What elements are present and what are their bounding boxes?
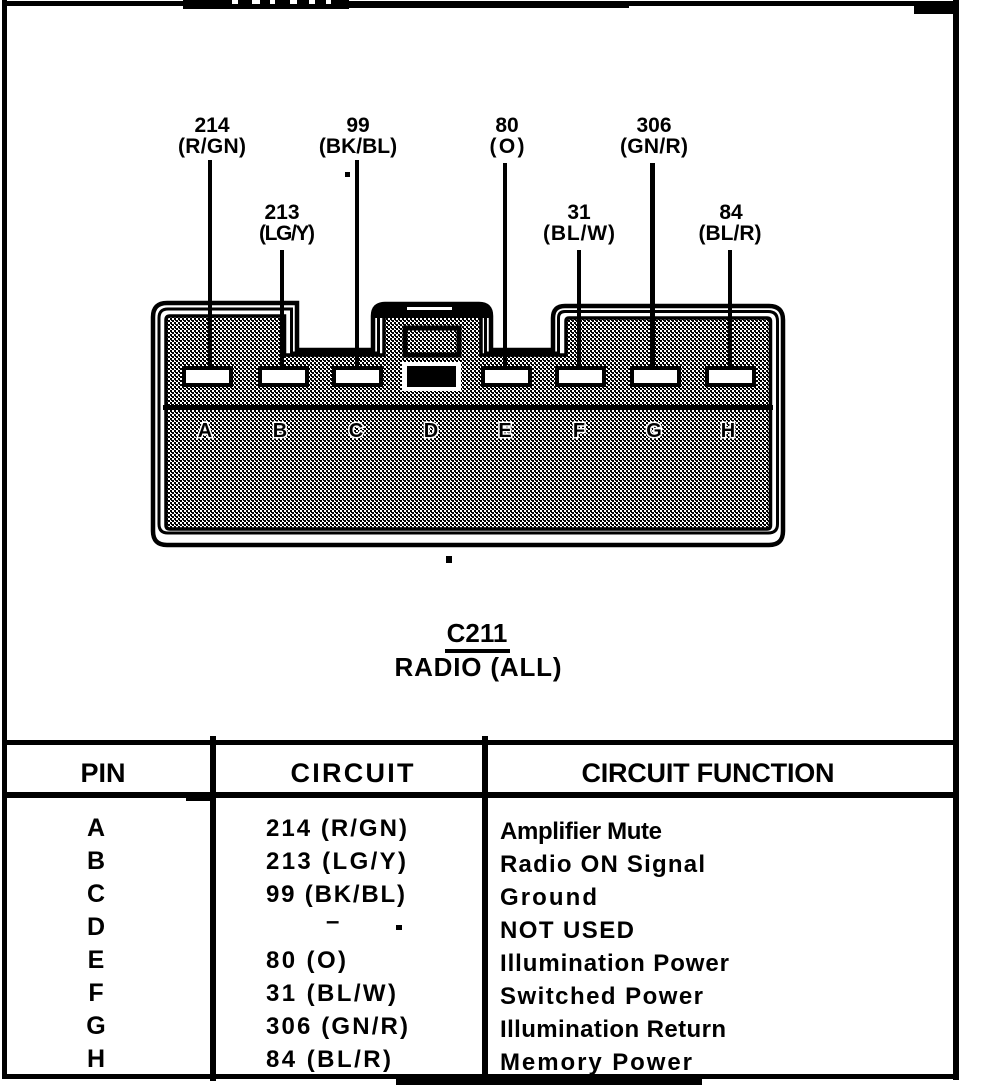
svg-text:B: B bbox=[273, 420, 287, 442]
svg-text:Ground: Ground bbox=[500, 884, 597, 911]
svg-text:Switched Power: Switched Power bbox=[500, 983, 703, 1010]
svg-text:C: C bbox=[349, 420, 363, 442]
svg-text:80: 80 bbox=[495, 114, 518, 137]
svg-text:Amplifier Mute: Amplifier Mute bbox=[500, 818, 662, 845]
svg-text:(O): (O) bbox=[490, 135, 525, 158]
svg-text:(BL/R): (BL/R) bbox=[699, 222, 762, 245]
svg-text:CIRCUIT FUNCTION: CIRCUIT FUNCTION bbox=[582, 758, 835, 788]
svg-text:PIN: PIN bbox=[80, 758, 125, 788]
svg-text:E: E bbox=[498, 420, 511, 442]
svg-text:D: D bbox=[424, 420, 438, 442]
svg-text:84: 84 bbox=[719, 201, 743, 224]
svg-text:31: 31 bbox=[567, 201, 591, 224]
svg-text:(GN/R): (GN/R) bbox=[620, 135, 688, 158]
svg-text:306: 306 bbox=[636, 114, 671, 137]
svg-text:NOT USED: NOT USED bbox=[500, 917, 634, 944]
svg-text:–: – bbox=[326, 908, 339, 935]
svg-text:Illumination Power: Illumination Power bbox=[500, 950, 729, 977]
svg-text:D: D bbox=[87, 913, 105, 941]
svg-text:99 (BK/BL): 99 (BK/BL) bbox=[266, 881, 405, 908]
svg-text:(BL/W): (BL/W) bbox=[543, 222, 615, 245]
svg-text:B: B bbox=[87, 847, 105, 875]
svg-text:F: F bbox=[88, 979, 103, 1007]
svg-text:Radio ON Signal: Radio ON Signal bbox=[500, 851, 705, 878]
svg-text:213 (LG/Y): 213 (LG/Y) bbox=[266, 848, 406, 875]
svg-text:C211: C211 bbox=[447, 618, 508, 648]
svg-text:80 (O): 80 (O) bbox=[266, 947, 346, 974]
svg-text:G: G bbox=[86, 1012, 105, 1040]
svg-text:(BK/BL): (BK/BL) bbox=[319, 135, 397, 158]
svg-text:H: H bbox=[87, 1045, 105, 1073]
svg-text:(LG/Y): (LG/Y) bbox=[259, 222, 315, 245]
svg-text:99: 99 bbox=[346, 114, 369, 137]
svg-text:31 (BL/W): 31 (BL/W) bbox=[266, 980, 396, 1007]
svg-text:RADIO (ALL): RADIO (ALL) bbox=[395, 652, 562, 682]
svg-text:(R/GN): (R/GN) bbox=[178, 135, 246, 158]
svg-text:213: 213 bbox=[264, 201, 299, 224]
svg-text:CIRCUIT: CIRCUIT bbox=[291, 758, 415, 788]
svg-text:214: 214 bbox=[194, 114, 229, 137]
svg-text:A: A bbox=[198, 420, 212, 442]
svg-text:A: A bbox=[87, 814, 105, 842]
svg-text:G: G bbox=[646, 420, 662, 442]
svg-text:214 (R/GN): 214 (R/GN) bbox=[266, 815, 407, 842]
svg-text:Illumination Return: Illumination Return bbox=[500, 1016, 726, 1043]
svg-text:E: E bbox=[88, 946, 105, 974]
svg-text:306 (GN/R): 306 (GN/R) bbox=[266, 1013, 408, 1040]
svg-text:C: C bbox=[87, 880, 105, 908]
svg-text:H: H bbox=[721, 420, 735, 442]
svg-text:84 (BL/R): 84 (BL/R) bbox=[266, 1046, 391, 1073]
svg-text:F: F bbox=[573, 420, 585, 442]
svg-text:Memory Power: Memory Power bbox=[500, 1049, 692, 1076]
